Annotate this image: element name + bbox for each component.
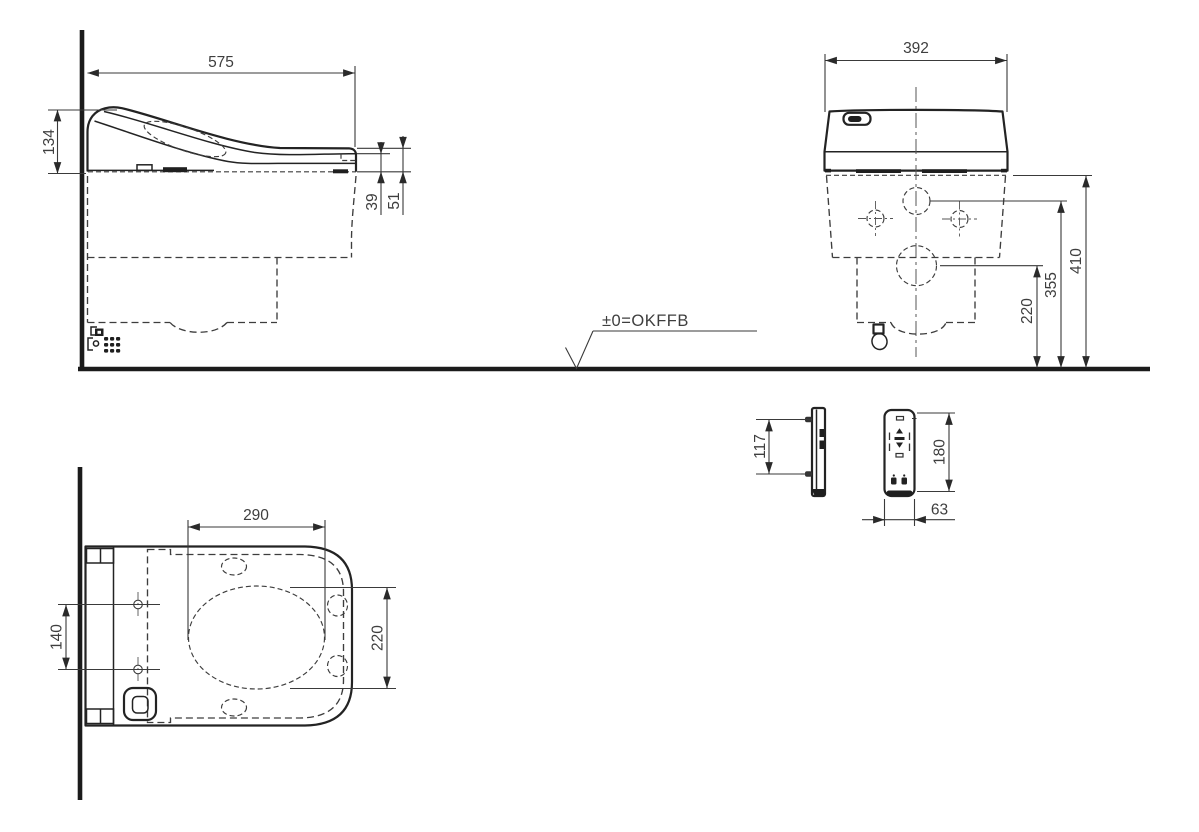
seat-bumper-bottom	[222, 699, 247, 716]
datum-lines	[78, 30, 1150, 800]
hose-coil-icon	[104, 337, 120, 353]
top-view: 290 220 140	[49, 507, 397, 726]
remote-side-dimensions: 117	[752, 420, 812, 475]
dim-side-depth: 575	[208, 54, 234, 71]
hinge-bracket-top	[87, 549, 114, 564]
foot-pad-dark	[163, 167, 187, 172]
dimensional-drawing: 575 134 39 51 ±0=OKFFB	[0, 0, 1199, 832]
remote-wash-icon-left	[891, 478, 897, 485]
dim-bowl-width: 290	[243, 507, 269, 524]
dim-front-underside-height: 410	[1068, 248, 1085, 274]
remote-down-arrow-icon	[896, 443, 903, 448]
remote-side-button-1	[820, 429, 825, 437]
technical-drawing-page: 575 134 39 51 ±0=OKFFB	[0, 0, 1199, 832]
front-base-strip-left	[856, 169, 901, 173]
lid-dashed-oval	[141, 114, 230, 164]
seat-bumper-top	[222, 558, 247, 575]
front-valve-detail	[870, 325, 888, 352]
bowl-hidden-outline-side	[88, 176, 357, 332]
datum-level-icon	[566, 331, 594, 369]
foot-pad-outline	[137, 165, 152, 171]
remote-front-view: 180 63	[862, 410, 955, 526]
top-view-outline	[86, 547, 353, 726]
dim-front-supply-height: 220	[1019, 298, 1036, 324]
remote-front-base	[887, 491, 913, 497]
remote-up-arrow-icon	[896, 428, 903, 433]
dim-bowl-depth: 220	[370, 625, 387, 651]
foot-pad-rear	[333, 169, 348, 173]
dim-remote-fixing-pitch: 117	[752, 434, 769, 459]
remote-side-outline	[812, 408, 825, 496]
dim-remote-height: 180	[932, 439, 949, 465]
dim-remote-width: 63	[931, 502, 948, 519]
remote-front-dimensions: 180 63	[862, 413, 955, 526]
side-view-dimensions: 575 134 39 51	[41, 54, 411, 215]
water-connection-detail	[88, 327, 120, 353]
washlet-side-outline	[88, 107, 357, 171]
dim-side-height: 134	[41, 129, 58, 155]
dim-front-fixing-height: 355	[1043, 272, 1060, 298]
front-view-dimensions: 392 220 355 410	[825, 40, 1092, 368]
dim-side-rear-inner: 39	[364, 193, 381, 210]
datum-label: ±0=OKFFB	[602, 312, 689, 330]
bowl-opening-oval	[189, 586, 325, 689]
dim-front-width: 392	[903, 40, 929, 57]
front-view: 392 220 355 410	[825, 40, 1093, 368]
remote-wash-icon-right	[902, 478, 908, 485]
seat-bumper-right-lower	[328, 656, 348, 677]
sensor-slot-dark	[848, 116, 862, 122]
dim-side-rear-outer: 51	[386, 192, 403, 209]
remote-side-button-2	[820, 441, 825, 450]
dim-top-fixing-pitch: 140	[49, 624, 66, 650]
remote-spray-dot-right	[903, 474, 905, 476]
fixing-holes	[858, 201, 977, 237]
datum-symbol: ±0=OKFFB	[566, 312, 758, 369]
front-base-corner-right	[1001, 169, 1007, 173]
washlet-side-lower-line	[95, 121, 357, 164]
remote-spray-dot-left	[893, 474, 895, 476]
remote-side-view: 117	[752, 408, 825, 497]
side-view: 575 134 39 51	[41, 54, 411, 353]
hinge-bracket-bottom	[87, 709, 114, 724]
remote-small-slot-icon	[896, 454, 903, 458]
seat-bumper-right-upper	[328, 595, 348, 616]
seat-hidden-outline-top	[148, 550, 344, 723]
front-base-corner-left	[825, 169, 831, 173]
drain-opening	[124, 688, 156, 720]
remote-top-slot-icon	[897, 417, 904, 421]
remote-center-bar-icon	[895, 437, 905, 440]
remote-buttons	[890, 417, 917, 485]
front-base-strip-right	[922, 169, 967, 173]
side-rear-dashed-detail	[341, 154, 356, 161]
